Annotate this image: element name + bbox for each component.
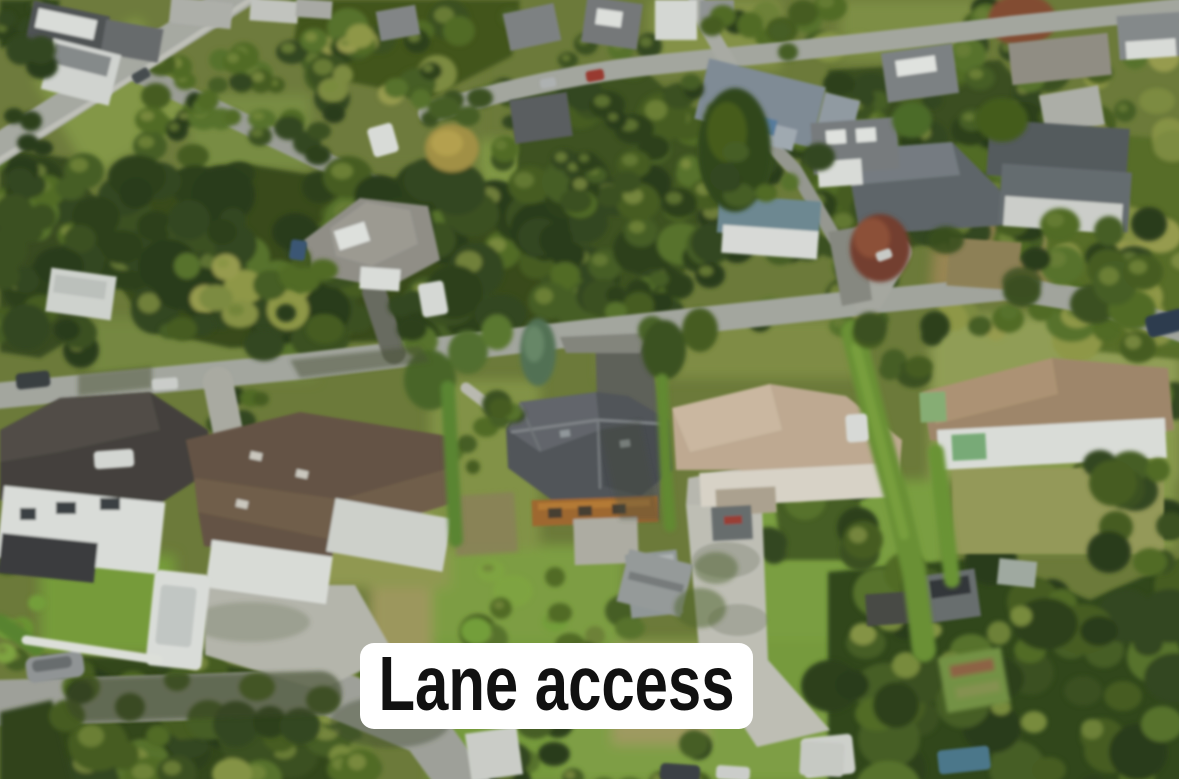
svg-text:Lane access: Lane access <box>379 641 735 727</box>
